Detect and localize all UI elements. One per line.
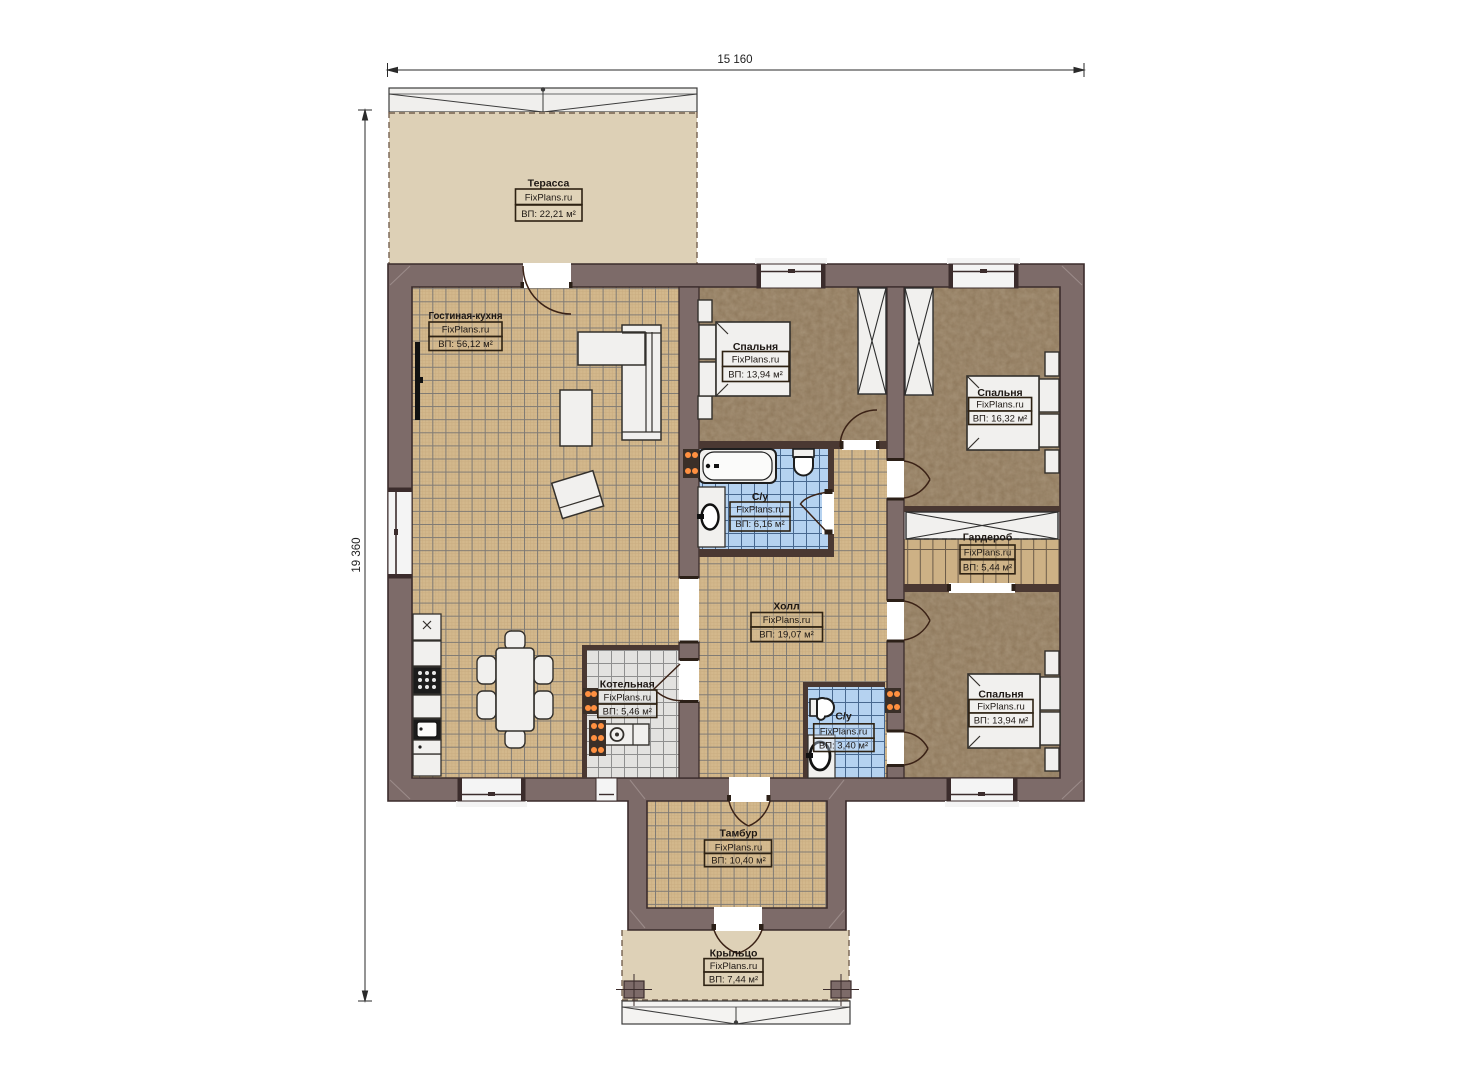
svg-text:FixPlans.ru: FixPlans.ru bbox=[710, 961, 758, 972]
svg-text:ВП: 10,40 м²: ВП: 10,40 м² bbox=[711, 856, 766, 867]
svg-text:FixPlans.ru: FixPlans.ru bbox=[442, 325, 490, 336]
svg-text:19 360: 19 360 bbox=[351, 537, 363, 572]
svg-text:С/у: С/у bbox=[835, 711, 852, 723]
svg-text:Холл: Холл bbox=[773, 601, 799, 613]
svg-text:Гостиная-кухня: Гостиная-кухня bbox=[429, 310, 503, 322]
svg-text:ВП: 13,94 м²: ВП: 13,94 м² bbox=[728, 370, 783, 381]
svg-text:FixPlans.ru: FixPlans.ru bbox=[732, 355, 780, 366]
svg-text:ВП: 7,44 м²: ВП: 7,44 м² bbox=[709, 974, 758, 985]
svg-text:Гардероб: Гардероб bbox=[963, 532, 1013, 544]
svg-text:FixPlans.ru: FixPlans.ru bbox=[964, 548, 1012, 559]
svg-text:ВП: 16,32 м²: ВП: 16,32 м² bbox=[973, 414, 1028, 425]
svg-text:ВП: 6,16 м²: ВП: 6,16 м² bbox=[735, 519, 784, 530]
svg-text:FixPlans.ru: FixPlans.ru bbox=[976, 400, 1024, 411]
svg-text:FixPlans.ru: FixPlans.ru bbox=[525, 193, 573, 204]
svg-text:ВП: 22,21 м²: ВП: 22,21 м² bbox=[521, 209, 576, 220]
svg-text:Крыльцо: Крыльцо bbox=[710, 948, 758, 960]
svg-text:FixPlans.ru: FixPlans.ru bbox=[604, 693, 652, 704]
svg-text:FixPlans.ru: FixPlans.ru bbox=[763, 615, 811, 626]
svg-text:ВП: 5,46 м²: ВП: 5,46 м² bbox=[603, 707, 652, 718]
svg-text:Котельная: Котельная bbox=[600, 679, 655, 691]
svg-text:15 160: 15 160 bbox=[717, 54, 752, 66]
svg-text:FixPlans.ru: FixPlans.ru bbox=[736, 505, 784, 516]
svg-text:FixPlans.ru: FixPlans.ru bbox=[820, 726, 868, 737]
svg-text:Терасса: Терасса bbox=[528, 178, 570, 190]
svg-text:Тамбур: Тамбур bbox=[719, 828, 757, 840]
svg-text:ВП: 13,94 м²: ВП: 13,94 м² bbox=[974, 716, 1029, 727]
svg-text:FixPlans.ru: FixPlans.ru bbox=[715, 842, 763, 853]
svg-text:ВП: 56,12 м²: ВП: 56,12 м² bbox=[438, 339, 493, 350]
svg-text:FixPlans.ru: FixPlans.ru bbox=[977, 702, 1025, 713]
svg-text:ВП: 3,40 м²: ВП: 3,40 м² bbox=[819, 741, 868, 752]
svg-text:ВП: 5,44 м²: ВП: 5,44 м² bbox=[963, 562, 1012, 573]
svg-text:ВП: 19,07 м²: ВП: 19,07 м² bbox=[759, 630, 814, 641]
